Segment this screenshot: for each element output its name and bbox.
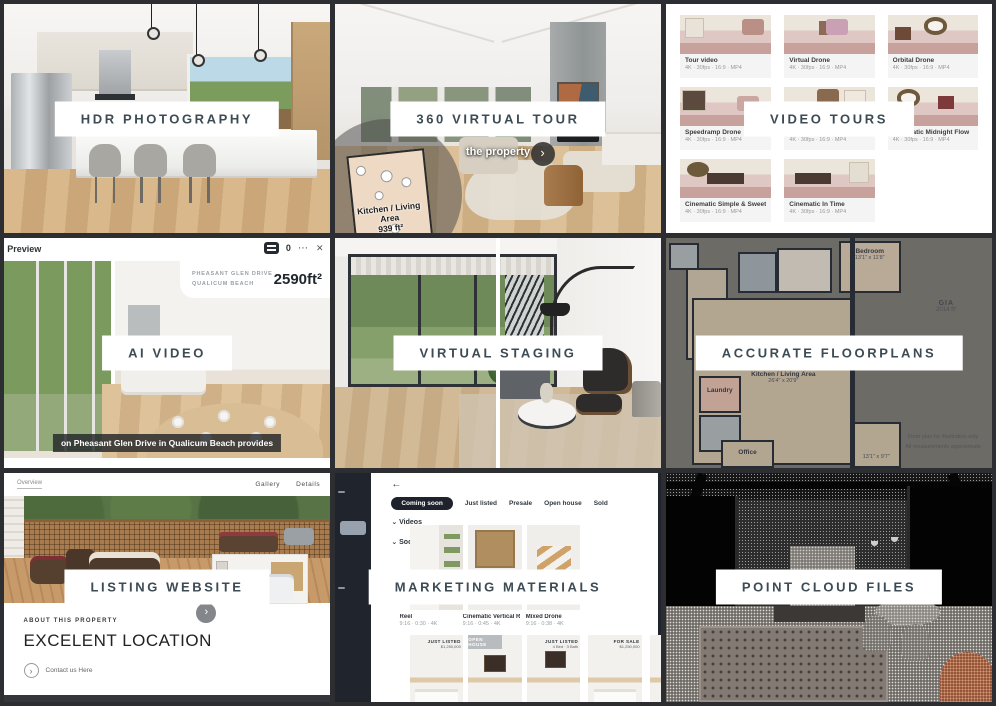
filter-coming-soon[interactable]: Coming soon: [391, 497, 453, 510]
accurate-floorplans-label: ACCURATE FLOORPLANS: [696, 335, 963, 370]
address-line2: QUALICUM BEACH: [192, 281, 254, 287]
more-options-icon[interactable]: ⋯: [298, 243, 309, 254]
room: [738, 252, 777, 293]
cta-arrow-icon: ›: [24, 663, 39, 678]
pano-marker[interactable]: [380, 170, 393, 183]
services-grid: HDR PHOTOGRAPHY ›: [0, 0, 996, 706]
tile-hdr-photography[interactable]: HDR PHOTOGRAPHY: [4, 4, 330, 233]
tour-welcome-text: the property: [466, 146, 530, 158]
stump-table: [544, 165, 583, 206]
tile-video-tours[interactable]: Tour video4K · 30fps · 16:9 · MP4 Virtua…: [666, 4, 992, 233]
ceiling-vault: [335, 4, 494, 43]
room: [777, 248, 832, 294]
marketing-materials-label: MARKETING MATERIALS: [369, 570, 628, 605]
patterned-rug: [699, 626, 888, 702]
sidebar-menu-icon[interactable]: [338, 587, 345, 589]
listing-website-label: LISTING WEBSITE: [64, 570, 269, 605]
pendant-light: [151, 4, 152, 32]
chair-points: [901, 624, 930, 661]
window-wall: [4, 261, 115, 450]
gia-area: GIA2014 ft²: [914, 300, 979, 313]
video-thumbnail: [888, 15, 978, 54]
tile-ai-video[interactable]: Preview 0 ⋯ ✕ PHEASANT GLEN DRIVE QUALIC…: [4, 238, 330, 467]
minimap-room-label: Kitchen / Living Area 939 ft²: [355, 199, 424, 233]
video-card[interactable]: Tour video4K · 30fps · 16:9 · MP4: [680, 15, 771, 78]
sidebar-menu-icon[interactable]: [338, 491, 345, 493]
video-thumbnail: [784, 15, 874, 54]
layers-icon[interactable]: [264, 242, 279, 254]
video-thumbnail: [680, 15, 771, 54]
timeline-strip: [4, 458, 330, 467]
pano-marker[interactable]: [355, 165, 366, 176]
filter-presale[interactable]: Presale: [509, 500, 532, 507]
tile-accurate-floorplans[interactable]: Bedroom13'1" x 11'8" Kitchen / Living Ar…: [666, 238, 992, 467]
hearth-slab: [774, 606, 865, 622]
about-label: ABOUT THIS PROPERTY: [24, 618, 311, 624]
video-thumbnail: [784, 159, 874, 198]
bedroom-label: Bedroom13'1" x 11'8": [839, 248, 901, 261]
ottoman: [576, 394, 622, 415]
close-icon[interactable]: ✕: [316, 243, 324, 254]
layer-count: 0: [286, 243, 291, 253]
chair-points: [862, 615, 891, 652]
window-soffit: [348, 254, 557, 275]
video-label: Mixed Drone9:16 · 0:38 · 4K: [526, 614, 583, 627]
social-card[interactable]: OPEN HOUSE: [468, 635, 521, 702]
floorplan-disclaimer: Floor plan for illustration onlyAll meas…: [901, 433, 986, 453]
tile-virtual-staging[interactable]: VIRTUAL STAGING: [335, 238, 661, 467]
empty-grid-cell: [888, 159, 978, 222]
video-tours-label: VIDEO TOURS: [744, 101, 914, 136]
tour-forward-arrow[interactable]: ›: [531, 142, 555, 166]
room: [669, 243, 698, 271]
dimension-note: 13'1" x 9'7": [852, 454, 901, 460]
social-card[interactable]: JUST LISTED$1,250,000: [410, 635, 463, 702]
living-label: Kitchen / Living Area26'4" x 20'9": [738, 371, 829, 384]
contact-cta[interactable]: › Contact us Here: [24, 663, 311, 678]
pendant-light: [196, 4, 197, 59]
headline: EXCELENT LOCATION: [24, 631, 311, 651]
side-table: [632, 381, 661, 418]
filter-open-house[interactable]: Open house: [544, 500, 582, 507]
tile-360-virtual-tour[interactable]: › Kitchen / Living Area 939 ft² 360 VIRT…: [335, 4, 661, 233]
video-card[interactable]: Orbital Drone4K · 30fps · 16:9 · MP4: [888, 15, 978, 78]
ai-video-label: AI VIDEO: [102, 335, 232, 370]
bbq-grill: [284, 528, 313, 545]
sidebar-selected-item[interactable]: [340, 521, 366, 535]
360-virtual-tour-label: 360 VIRTUAL TOUR: [390, 101, 605, 136]
bar-stool: [183, 144, 216, 204]
minimap-floorplan: Kitchen / Living Area 939 ft²: [346, 148, 433, 233]
site-logo[interactable]: Overview: [17, 480, 42, 489]
nav-gallery[interactable]: Gallery: [255, 481, 280, 488]
laundry-label: Laundry: [699, 387, 741, 394]
wicker-bench: [219, 532, 278, 551]
video-label: Cinematic Vertical Reel9:16 · 0:45 · 4K: [463, 614, 520, 627]
video-thumbnail: [680, 159, 771, 198]
filter-just-listed[interactable]: Just listed: [465, 500, 497, 507]
video-card[interactable]: Cinematic In Time4K · 30fps · 16:9 · MP4: [784, 159, 874, 222]
window-title: Preview: [7, 244, 41, 254]
bar-stool: [134, 144, 167, 204]
nav-details[interactable]: Details: [296, 481, 320, 488]
address-line1: PHEASANT GLEN DRIVE: [192, 271, 273, 277]
office-label: Office: [721, 449, 773, 456]
video-card[interactable]: Cinematic Simple & Sweet4K · 30fps · 16:…: [680, 159, 771, 222]
ai-caption: on Pheasant Glen Drive in Qualicum Beach…: [53, 434, 281, 452]
wood-floor: [4, 169, 330, 233]
pano-marker[interactable]: [401, 177, 412, 188]
pano-marker[interactable]: [375, 191, 385, 201]
video-label: Reel9:16 · 0:30 · 4K: [400, 614, 457, 627]
lamp-shade: [540, 303, 569, 317]
social-cards: JUST LISTED$1,250,000 OPEN HOUSE JUST LI…: [391, 635, 658, 702]
site-navbar: Overview Gallery Details: [4, 473, 330, 496]
tile-marketing-materials[interactable]: ← Coming soon Just listed Presale Open h…: [335, 473, 661, 702]
cta-label: Contact us Here: [46, 667, 93, 674]
point-cloud-files-label: POINT CLOUD FILES: [716, 570, 942, 605]
property-info-card: PHEASANT GLEN DRIVE QUALICUM BEACH 2590f…: [180, 261, 330, 298]
social-card[interactable]: FOR SALE$1,250,000: [588, 635, 641, 702]
tile-point-cloud-files[interactable]: POINT CLOUD FILES: [666, 473, 992, 702]
property-area: 2590ft²: [274, 271, 322, 288]
site-footer-strip: [4, 695, 330, 702]
video-card[interactable]: Virtual Drone4K · 30fps · 16:9 · MP4: [784, 15, 874, 78]
hdr-photography-label: HDR PHOTOGRAPHY: [55, 101, 279, 136]
back-arrow-icon[interactable]: ←: [391, 479, 648, 490]
bar-stool: [89, 144, 122, 204]
about-section: ABOUT THIS PROPERTY EXCELENT LOCATION › …: [4, 603, 330, 695]
pendant-light: [258, 4, 259, 54]
room: [852, 422, 901, 468]
range-hood: [99, 50, 132, 96]
social-card-partial[interactable]: [650, 635, 661, 702]
wicker-chair: [30, 556, 69, 584]
preview-titlebar: Preview 0 ⋯ ✕: [4, 238, 330, 261]
campaign-filters: Coming soon Just listed Presale Open hou…: [391, 497, 648, 510]
orange-armchair: [940, 652, 992, 702]
social-card[interactable]: JUST LISTED4 Bed · 3 Bath: [527, 635, 580, 702]
sideboard: [602, 132, 661, 164]
tile-listing-website[interactable]: Overview Gallery Details › ABOUT THIS PR…: [4, 473, 330, 702]
filter-sold[interactable]: Sold: [594, 500, 608, 507]
virtual-staging-label: VIRTUAL STAGING: [394, 335, 603, 370]
